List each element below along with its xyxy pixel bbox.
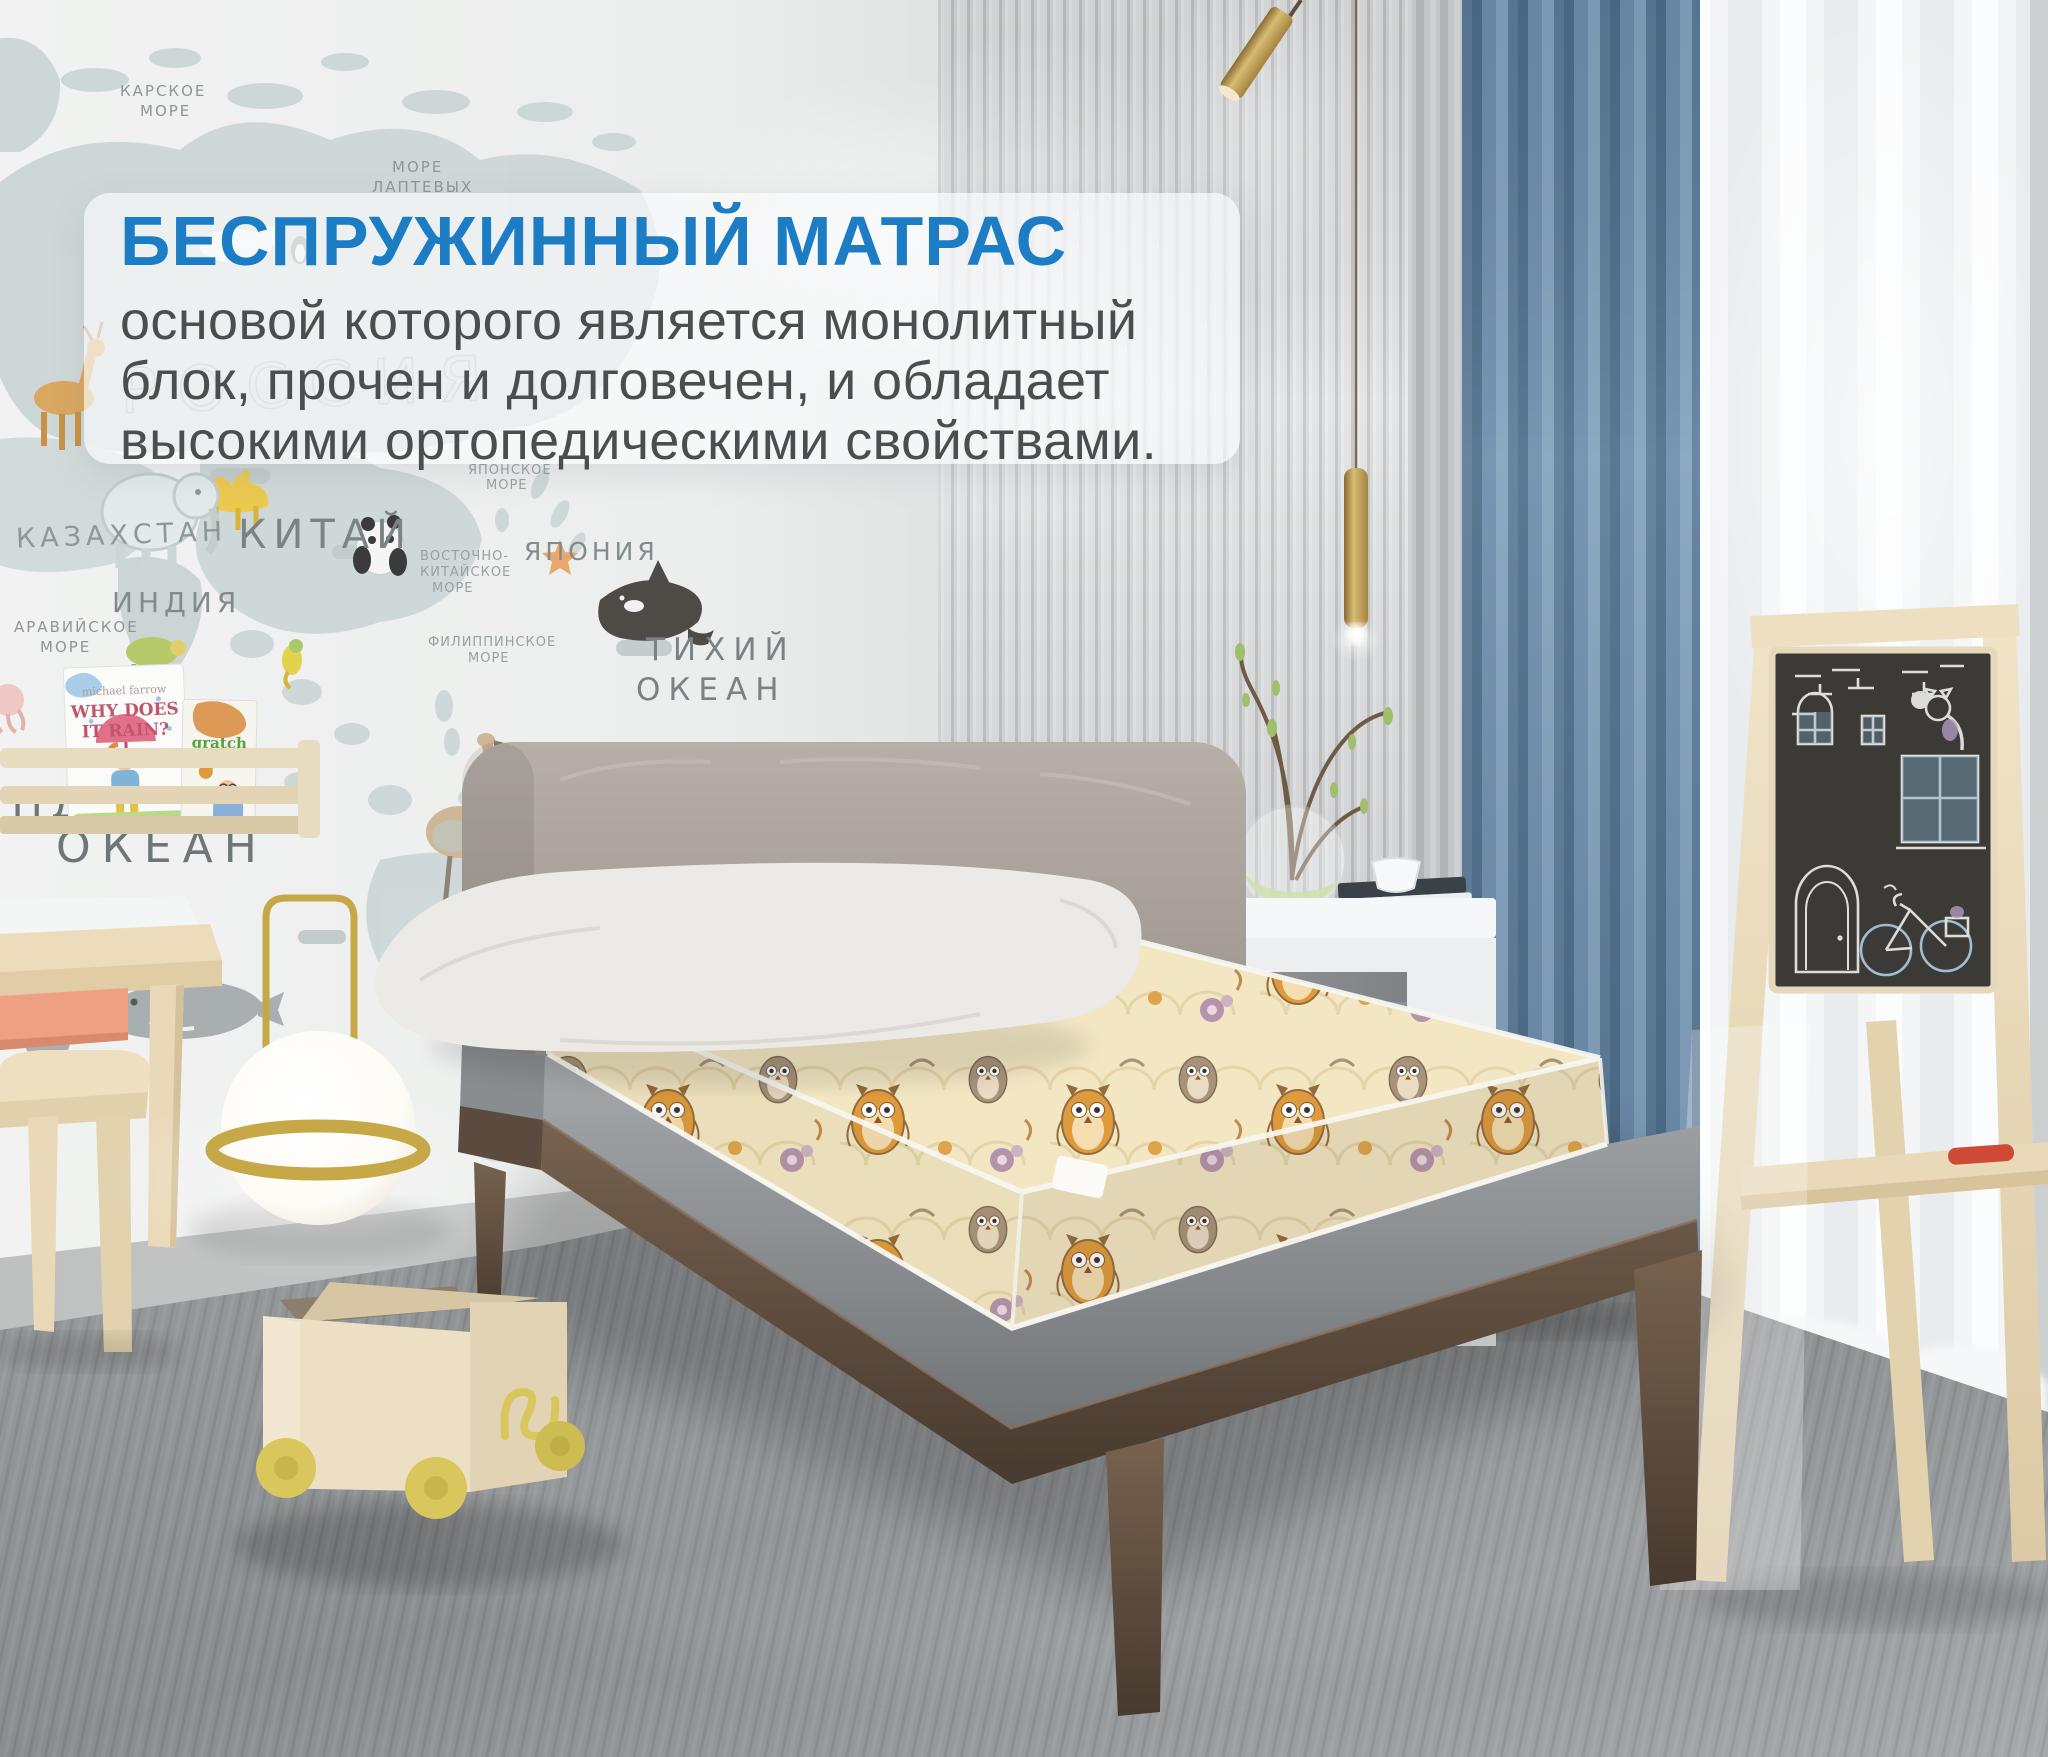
map-label-india: ИНДИЯ bbox=[112, 586, 241, 619]
map-label-pacific-1: ТИХИЙ bbox=[645, 632, 796, 668]
map-label-pacific-2: ОКЕАН bbox=[636, 672, 787, 708]
map-label-east-china-1: ВОСТОЧНО- bbox=[420, 549, 509, 564]
promo-line-1: основой которого является монолитный bbox=[120, 292, 1204, 350]
pillow bbox=[374, 863, 1141, 1052]
promo-title: БЕСПРУЖИННЫЙ МАТРАС bbox=[120, 205, 1204, 278]
bookshelf-rails bbox=[0, 740, 320, 840]
map-label-east-china-2: КИТАЙСКОЕ bbox=[420, 564, 511, 580]
scene-children-bedroom: КАРСКОЕ МОРЕ МОРЕ ЛАПТЕВЫХ РОССИЯ КАЗАХС… bbox=[0, 0, 2048, 1757]
book1-title-line2: IT RAIN? bbox=[82, 719, 170, 742]
map-label-kara-sea-2: МОРЕ bbox=[140, 102, 191, 120]
map-label-arabian-2: МОРЕ bbox=[40, 638, 91, 656]
promo-line-3: высокими ортопедическими свойствами. bbox=[120, 412, 1204, 470]
white-cup bbox=[1372, 858, 1420, 892]
map-label-arabian-1: АРАВИЙСКОЕ bbox=[14, 617, 139, 636]
map-label-east-china-3: МОРЕ bbox=[432, 581, 474, 596]
map-label-japan: ЯПОНИЯ bbox=[524, 537, 659, 566]
promo-panel: БЕСПРУЖИННЫЙ МАТРАС основой которого явл… bbox=[84, 193, 1240, 464]
map-label-philippine-1: ФИЛИППИНСКОЕ bbox=[428, 635, 556, 650]
map-label-kara-sea-1: КАРСКОЕ bbox=[120, 82, 206, 100]
map-label-china: КИТАЙ bbox=[238, 510, 413, 558]
map-label-philippine-2: МОРЕ bbox=[468, 651, 510, 666]
map-label-laptev-1: МОРЕ bbox=[392, 158, 443, 176]
promo-line-2: блок, прочен и долговечен, и обладает bbox=[120, 352, 1204, 410]
map-label-japan-sea-2: МОРЕ bbox=[486, 478, 528, 493]
